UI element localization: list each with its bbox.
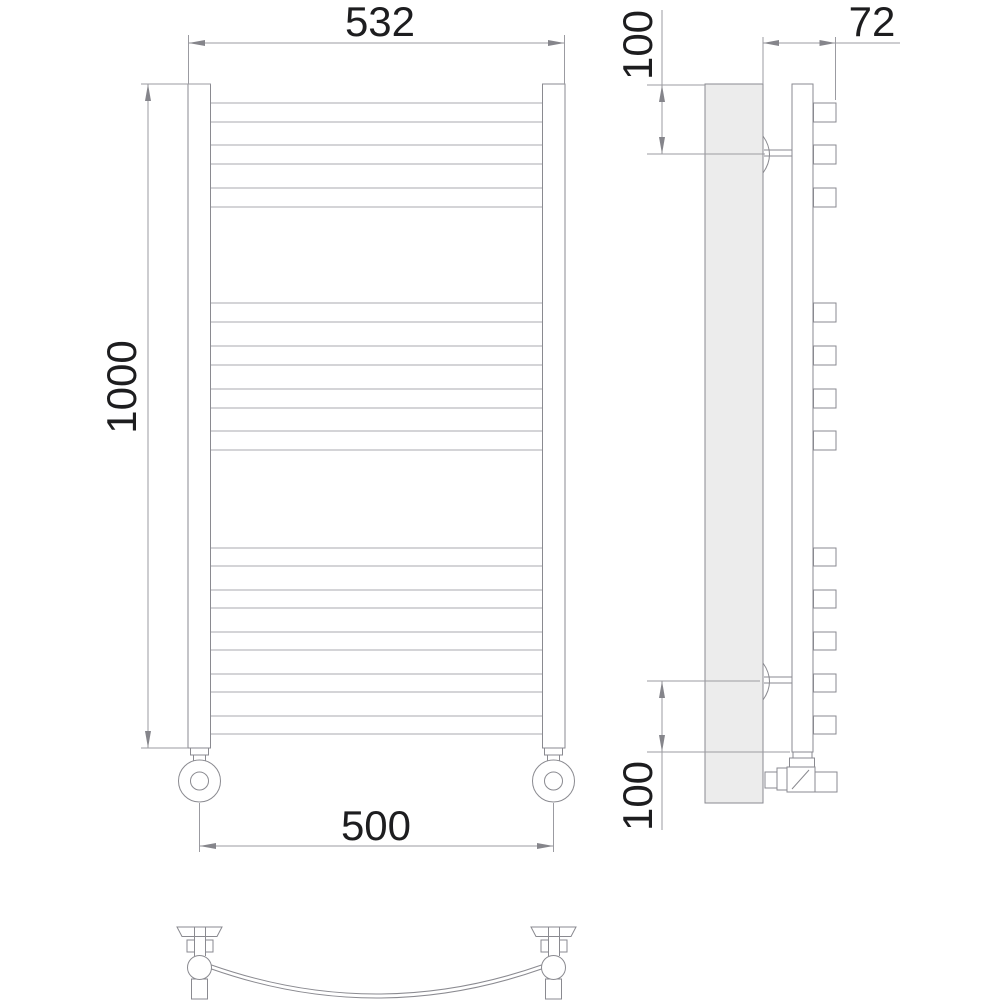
plan-view	[177, 927, 576, 999]
towel-rail-drawing: 532 1000 500	[0, 0, 1000, 1000]
arrow-right-icon	[820, 40, 836, 46]
arrow-up-icon	[659, 85, 665, 102]
side-rung-stub	[814, 145, 837, 164]
arrow-right-icon	[537, 843, 554, 849]
dimension-top-width: 532	[189, 0, 565, 84]
arrow-left-icon	[763, 40, 779, 46]
arrow-down-icon	[659, 735, 665, 752]
arrow-down-icon	[659, 137, 665, 154]
valve-nut	[790, 758, 815, 767]
drawing-canvas: 532 1000 500	[0, 0, 1000, 1000]
curved-rung-outer	[212, 965, 542, 994]
dimension-depth: 72	[763, 0, 900, 100]
side-rung-stub	[814, 389, 837, 408]
front-left-post	[188, 84, 211, 748]
side-rung-stub	[814, 346, 837, 365]
side-post	[792, 84, 813, 752]
dimension-label-bottom-width: 500	[341, 802, 411, 849]
arrow-right-icon	[548, 40, 565, 46]
dimension-bottom-width: 500	[200, 802, 554, 852]
nut-block	[206, 940, 214, 952]
side-rung-stub	[814, 590, 837, 608]
nut-block	[541, 940, 549, 952]
nut-block	[560, 940, 568, 952]
post-circle	[542, 956, 566, 980]
side-rung-stub	[814, 431, 837, 450]
plan-left-post	[177, 927, 222, 999]
dimension-label-top-offset: 100	[614, 10, 661, 80]
bracket-cup	[763, 663, 770, 700]
valve-stem	[793, 752, 812, 758]
side-rung-stub	[814, 548, 837, 566]
valve-union-nut	[777, 768, 787, 790]
wall-flange	[531, 927, 576, 937]
dimension-bottom-offset: 100	[614, 681, 790, 831]
arrow-down-icon	[145, 731, 151, 748]
arrow-left-icon	[200, 843, 217, 849]
nut-block	[187, 940, 195, 952]
front-view	[179, 84, 575, 802]
side-rung-stub	[814, 632, 837, 650]
top-bracket	[763, 136, 792, 173]
front-left-fitting	[179, 748, 221, 802]
post-section	[192, 979, 208, 999]
front-right-post	[543, 84, 566, 748]
front-rungs	[211, 103, 543, 734]
valve-body	[191, 748, 209, 755]
arrow-up-icon	[145, 84, 151, 101]
dimension-label-top-width: 532	[345, 0, 415, 45]
front-right-fitting	[533, 748, 575, 802]
valve-outlet-pipe	[815, 772, 837, 792]
bottom-bracket	[763, 663, 792, 700]
valve-wall-stub	[765, 772, 777, 788]
side-rung-stub	[814, 674, 837, 692]
side-view	[705, 84, 837, 803]
flange-inner-circle	[545, 772, 563, 790]
side-rung-stub	[814, 303, 837, 322]
wall-plate	[705, 84, 763, 803]
plan-right-post	[531, 927, 576, 999]
side-rung-stub	[814, 103, 837, 122]
wall-flange	[177, 927, 222, 937]
post-circle	[188, 956, 212, 980]
dimension-label-height: 1000	[98, 340, 145, 433]
side-rung-stub	[814, 716, 837, 734]
arrow-left-icon	[189, 40, 206, 46]
side-rungs	[814, 103, 837, 734]
dimension-label-bottom-offset: 100	[614, 761, 661, 831]
post-section	[546, 979, 562, 999]
flange-inner-circle	[191, 772, 209, 790]
dimension-label-depth: 72	[849, 0, 896, 45]
arrow-up-icon	[659, 681, 665, 698]
side-valve	[765, 752, 837, 792]
valve-body	[545, 748, 563, 755]
side-rung-stub	[814, 188, 837, 207]
